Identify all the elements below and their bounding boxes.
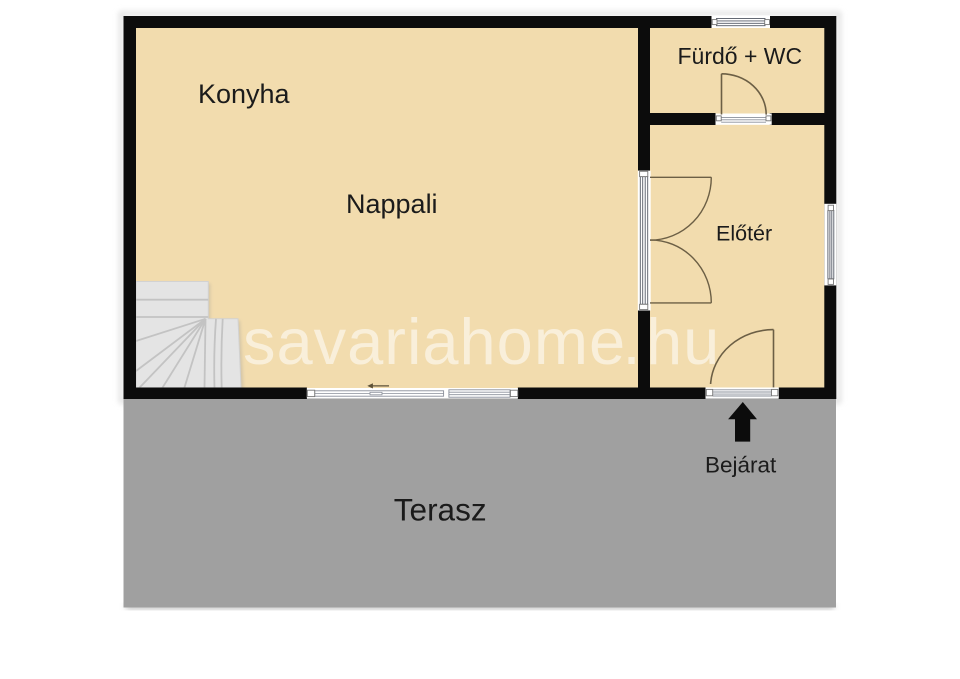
svg-text:Konyha: Konyha [198,79,291,109]
svg-text:Bejárat: Bejárat [705,453,777,478]
svg-text:Nappali: Nappali [346,189,438,219]
svg-text:Előtér: Előtér [716,222,772,246]
svg-text:Terasz: Terasz [394,492,487,528]
svg-text:Fürdő + WC: Fürdő + WC [678,43,803,69]
